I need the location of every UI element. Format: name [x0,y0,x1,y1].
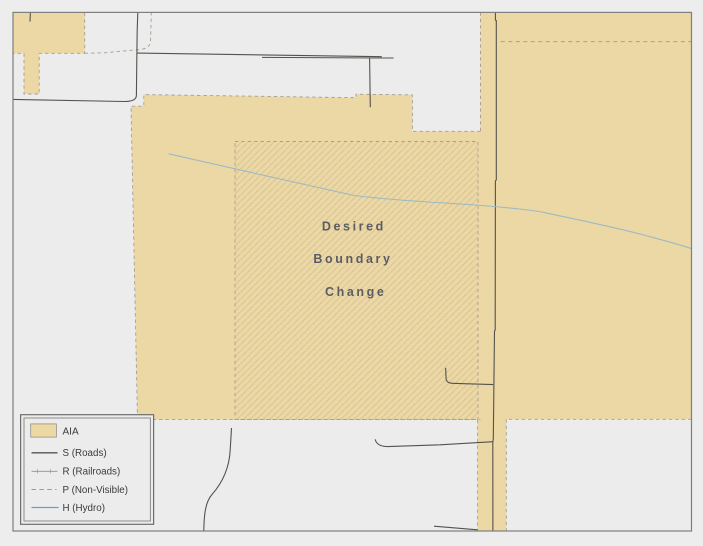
svg-text:Change: Change [325,285,386,299]
svg-text:P (Non-Visible): P (Non-Visible) [63,485,129,496]
svg-text:H (Hydro): H (Hydro) [63,503,105,514]
svg-text:AIA: AIA [63,426,79,437]
svg-text:Desired: Desired [322,220,386,234]
svg-text:Boundary: Boundary [313,252,392,266]
svg-text:R (Railroads): R (Railroads) [63,467,121,478]
svg-text:S (Roads): S (Roads) [63,448,107,459]
